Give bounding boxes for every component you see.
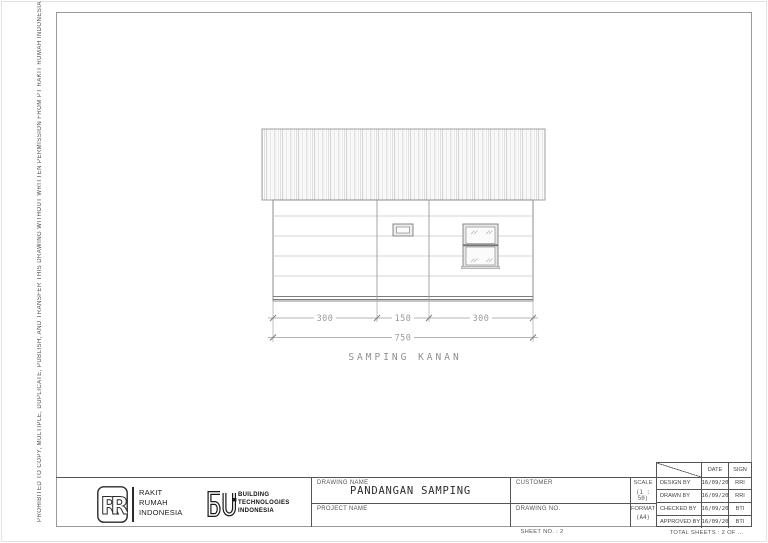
approval-row-sign: RRI xyxy=(728,478,751,490)
titleblock-row-divider xyxy=(311,503,656,504)
bti-logo-dot xyxy=(233,498,236,501)
date-header: DATE xyxy=(701,463,728,477)
format-value: (A4) xyxy=(630,515,656,521)
approval-table: DATE SIGN DESIGN BY 16/09/20 RRI DRAWN B… xyxy=(656,462,752,527)
approval-row-label: DESIGN BY xyxy=(657,478,701,490)
sign-header: SIGN xyxy=(728,463,751,477)
approval-row-date: 16/09/20 xyxy=(701,503,728,515)
approval-row-label: DRAWN BY xyxy=(657,490,701,502)
approval-row-sign: BTI xyxy=(728,516,751,528)
dim-total: 750 xyxy=(395,334,412,344)
approval-row: DRAWN BY 16/09/20 RRI xyxy=(657,489,751,502)
rakit-line-3: INDONESIA xyxy=(139,508,183,518)
rakit-rumah-logo: R R xyxy=(97,486,128,523)
approval-row: APPROVED BY 16/09/20 BTI xyxy=(657,515,751,528)
logo-separator xyxy=(132,487,134,522)
scale-label: SCALE xyxy=(630,480,656,486)
rakit-line-1: RAKIT xyxy=(139,488,183,498)
approval-row-label: CHECKED BY xyxy=(657,503,701,515)
building-technologies-logo xyxy=(205,489,237,520)
scale-value: (1 : 50) xyxy=(630,490,656,502)
approval-header-row: DATE SIGN xyxy=(657,463,751,477)
customer-label: CUSTOMER xyxy=(516,480,553,486)
sheet-number: SHEET NO. : 2 xyxy=(496,529,588,535)
elevation-drawing: 300 150 300 750 SAMPING KANAN xyxy=(250,120,560,370)
approval-row-date: 16/09/20 xyxy=(701,516,728,528)
approval-row-date: 16/09/20 xyxy=(701,478,728,490)
total-sheets: TOTAL SHEETS : 2 OF ... xyxy=(658,530,755,536)
copyright-notice: PROHIBITED TO COPY, MULTIPLE, DUPLICATE,… xyxy=(37,16,50,522)
format-label: FORMAT xyxy=(630,506,656,512)
approval-row-sign: RRI xyxy=(728,490,751,502)
dim-b: 150 xyxy=(395,314,412,324)
dim-a: 300 xyxy=(317,314,334,324)
project-name-label: PROJECT NAME xyxy=(317,506,368,512)
bti-line-1: BUILDING xyxy=(238,492,290,500)
drawing-no-label: DRAWING NO. xyxy=(516,506,560,512)
bti-line-3: INDONESIA xyxy=(238,508,290,516)
roof xyxy=(262,129,545,200)
approval-row: CHECKED BY 16/09/20 BTI xyxy=(657,502,751,515)
rakit-rumah-name: RAKIT RUMAH INDONESIA xyxy=(139,488,183,518)
approval-row-date: 16/09/20 xyxy=(701,490,728,502)
approval-diagonal-cell xyxy=(657,463,701,477)
rakit-line-2: RUMAH xyxy=(139,498,183,508)
drawing-name-value: PANDANGAN SAMPING xyxy=(311,485,510,497)
bti-line-2: TECHNOLOGIES xyxy=(238,500,290,508)
approval-row-label: APPROVED BY xyxy=(657,516,701,528)
vent-window xyxy=(393,224,413,236)
titleblock-divider-2 xyxy=(510,477,511,527)
dim-c: 300 xyxy=(473,314,490,324)
dimension-line-segments: 300 150 300 xyxy=(268,314,538,325)
building-technologies-name: BUILDING TECHNOLOGIES INDONESIA xyxy=(238,492,290,515)
approval-row-sign: BTI xyxy=(728,503,751,515)
drawing-sheet: PROHIBITED TO COPY, MULTIPLE, DUPLICATE,… xyxy=(0,0,768,543)
view-title: SAMPING KANAN xyxy=(348,352,461,363)
sash-window xyxy=(462,224,500,269)
dimension-line-total: 750 xyxy=(268,333,538,344)
approval-row: DESIGN BY 16/09/20 RRI xyxy=(657,477,751,490)
rr-letter-2: R xyxy=(111,492,129,520)
titleblock-top-border xyxy=(56,477,656,478)
